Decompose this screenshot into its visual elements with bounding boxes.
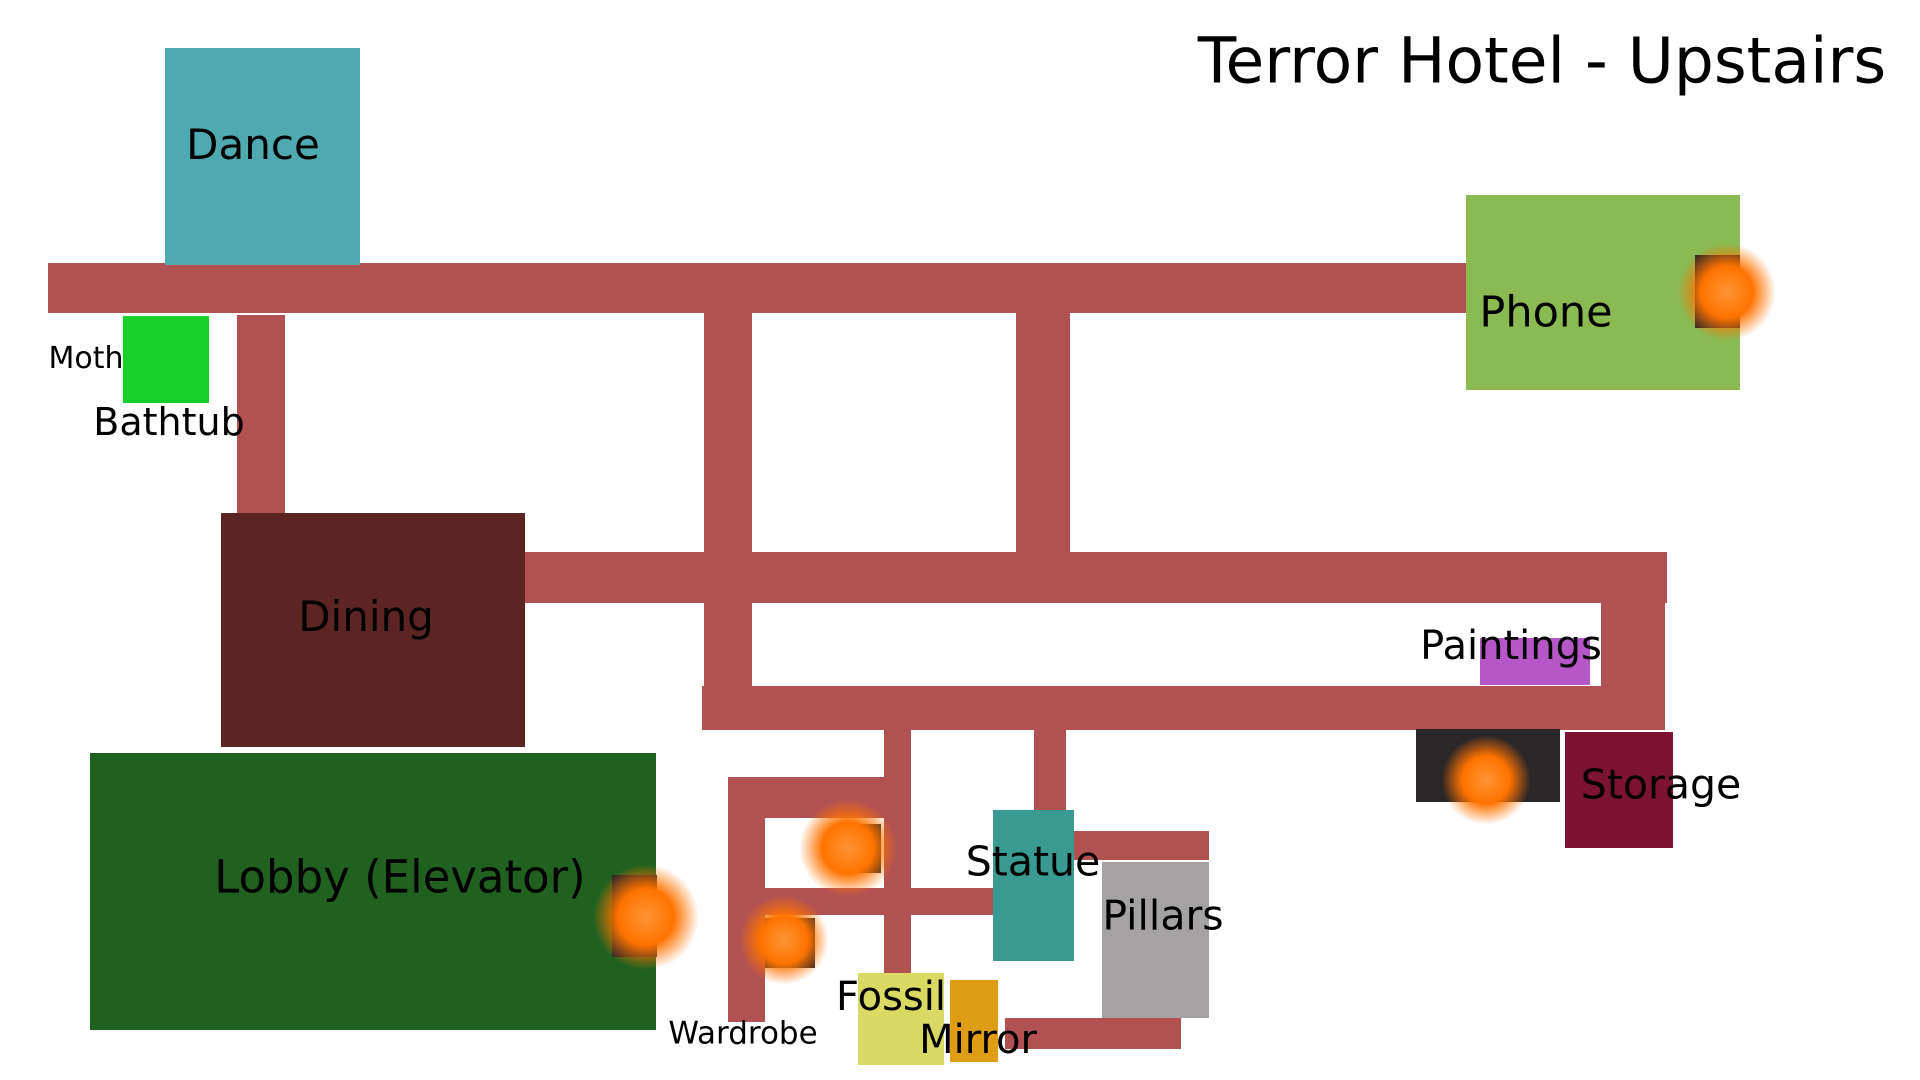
label-moth: Moth xyxy=(48,344,123,374)
dark-square-phone-light xyxy=(1695,255,1740,328)
room-label-fossil: Fossil xyxy=(836,977,946,1017)
room-pillars xyxy=(1102,862,1209,1018)
corridor-segment xyxy=(765,888,993,915)
room-label-dining: Dining xyxy=(298,596,434,638)
room-label-lobby: Lobby (Elevator) xyxy=(214,855,586,900)
room-label-paintings: Paintings xyxy=(1420,626,1602,666)
map-title: Terror Hotel - Upstairs xyxy=(1198,30,1886,93)
room-label-mirror: Mirror xyxy=(919,1020,1037,1060)
dark-square-storage-light xyxy=(1416,729,1560,802)
corridor-segment xyxy=(884,728,911,973)
dark-square-hall-light-upper xyxy=(839,824,881,873)
room-label-statue: Statue xyxy=(966,842,1101,883)
corridor-segment xyxy=(48,263,1466,313)
corridor-segment xyxy=(525,552,1667,603)
room-statue xyxy=(993,810,1074,961)
corridor-segment xyxy=(704,313,752,686)
room-label-storage: Storage xyxy=(1581,765,1741,806)
corridor-segment xyxy=(1016,313,1070,553)
dark-square-hall-light-lower xyxy=(765,918,815,968)
dark-square-lobby-light xyxy=(612,875,657,957)
label-wardrobe: Wardrobe xyxy=(668,1019,817,1050)
label-bathtub: Bathtub xyxy=(93,403,244,441)
room-label-dance: Dance xyxy=(186,124,320,166)
room-moth-room xyxy=(123,316,209,403)
corridor-segment xyxy=(1034,728,1066,812)
room-label-pillars: Pillars xyxy=(1102,896,1223,937)
corridor-segment xyxy=(702,686,1665,730)
room-label-phone: Phone xyxy=(1479,292,1612,335)
hotel-map: Terror Hotel - Upstairs DanceDiningLobby… xyxy=(0,0,1920,1080)
corridor-segment xyxy=(728,777,765,1022)
